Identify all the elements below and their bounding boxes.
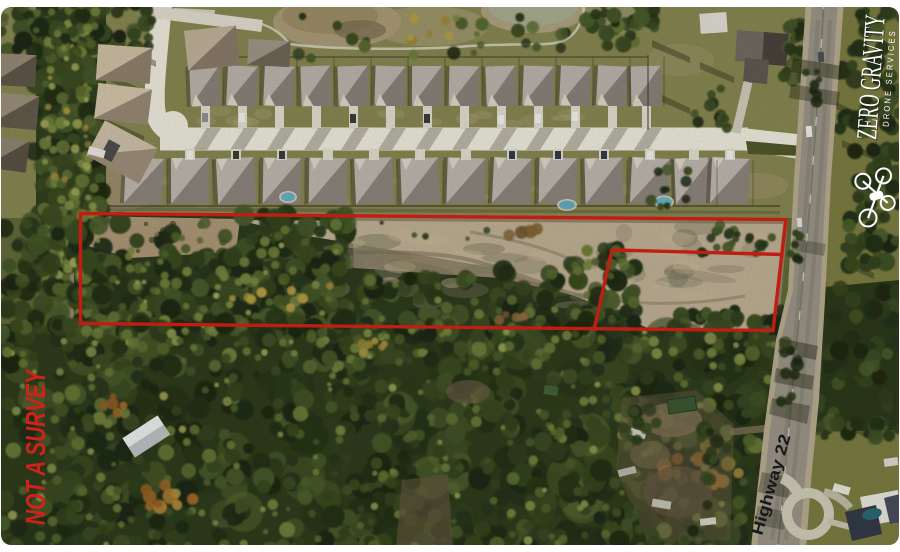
svg-text:NOT A SURVEY: NOT A SURVEY [20,368,51,525]
